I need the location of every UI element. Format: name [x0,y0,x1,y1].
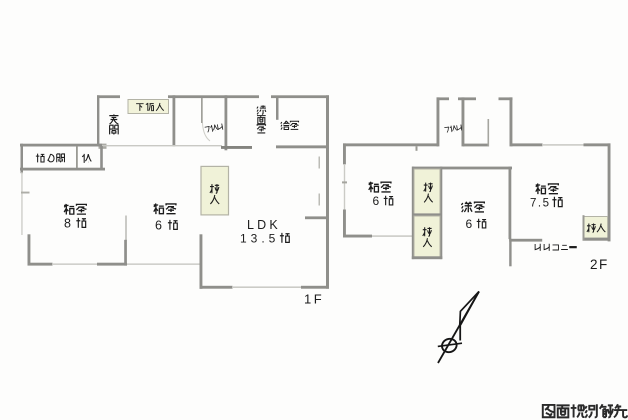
svg-text:6: 6 [373,194,380,208]
svg-text:13.5: 13.5 [240,232,279,246]
svg-text:8: 8 [64,216,71,230]
svg-text:LDK: LDK [247,218,281,232]
svg-text:7.5: 7.5 [530,197,551,209]
svg-text:1F: 1F [304,292,324,307]
svg-text:2F: 2F [590,257,609,272]
svg-text:6: 6 [466,217,473,231]
svg-text:6: 6 [155,218,162,232]
